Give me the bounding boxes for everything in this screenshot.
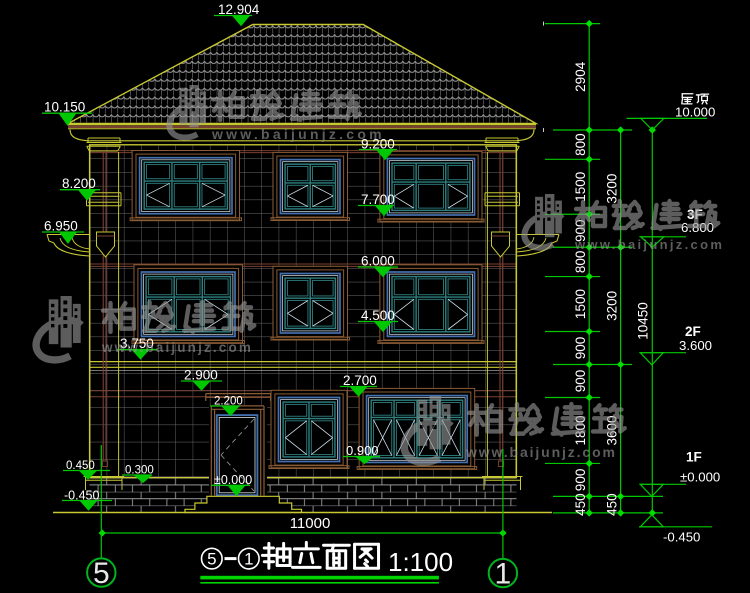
svg-text:1: 1 xyxy=(244,550,253,569)
svg-text:4.500: 4.500 xyxy=(361,308,395,323)
svg-text:900: 900 xyxy=(573,469,588,492)
svg-text:10.000: 10.000 xyxy=(675,105,715,120)
svg-text:www.baijunjz.com: www.baijunjz.com xyxy=(465,444,617,460)
svg-text:www.baijunjz.com: www.baijunjz.com xyxy=(211,126,385,142)
svg-text:450: 450 xyxy=(605,493,620,516)
svg-text:10450: 10450 xyxy=(635,302,650,340)
svg-text:±0.000: ±0.000 xyxy=(680,470,720,485)
svg-text:3.600: 3.600 xyxy=(679,338,712,353)
svg-text:1500: 1500 xyxy=(573,289,588,319)
svg-text:2904: 2904 xyxy=(573,61,588,92)
svg-text:800: 800 xyxy=(573,133,588,156)
svg-text:2.700: 2.700 xyxy=(343,373,377,388)
svg-text:3200: 3200 xyxy=(605,291,620,321)
svg-text:8.200: 8.200 xyxy=(62,176,96,191)
svg-text:1:100: 1:100 xyxy=(388,547,453,577)
svg-text:-0.450: -0.450 xyxy=(663,530,700,545)
svg-text:1F: 1F xyxy=(686,450,702,465)
svg-text:1: 1 xyxy=(495,558,512,591)
svg-text:0.900: 0.900 xyxy=(346,443,379,458)
svg-text:900: 900 xyxy=(573,370,588,393)
svg-text:900: 900 xyxy=(573,337,588,360)
svg-text:6.950: 6.950 xyxy=(44,219,78,234)
svg-text:5: 5 xyxy=(207,550,216,569)
svg-text:450: 450 xyxy=(573,493,588,516)
svg-text:11000: 11000 xyxy=(290,515,331,532)
svg-text:2F: 2F xyxy=(685,324,701,339)
svg-text:6.000: 6.000 xyxy=(361,253,395,268)
svg-text:5: 5 xyxy=(93,557,110,590)
svg-text:www.baijunjz.com: www.baijunjz.com xyxy=(101,340,253,355)
svg-text:3200: 3200 xyxy=(605,174,620,204)
svg-text:1500: 1500 xyxy=(573,172,588,202)
svg-text:800: 800 xyxy=(573,251,588,274)
svg-text:10.150: 10.150 xyxy=(44,100,85,115)
svg-text:7.700: 7.700 xyxy=(361,192,395,207)
svg-text:www.baijunjz.com: www.baijunjz.com xyxy=(574,237,724,252)
